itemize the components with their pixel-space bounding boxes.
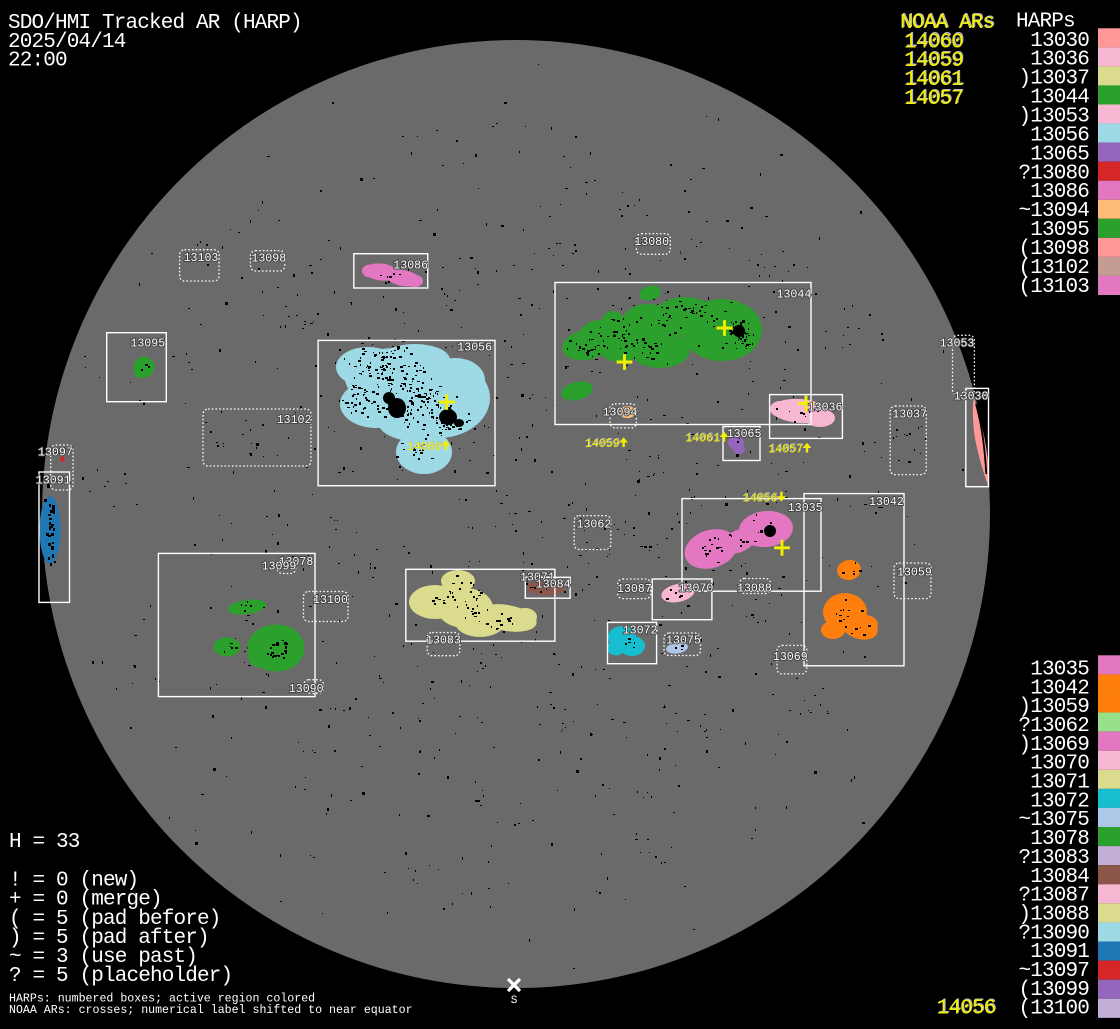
svg-text:14057: 14057: [768, 444, 803, 457]
svg-text:13080: 13080: [634, 236, 669, 249]
svg-text:13100: 13100: [313, 594, 348, 607]
svg-text:13097: 13097: [38, 447, 73, 460]
svg-text:14059: 14059: [585, 438, 620, 451]
svg-text:13095: 13095: [130, 338, 165, 351]
svg-text:13036: 13036: [808, 402, 843, 415]
svg-text:13088: 13088: [737, 583, 772, 596]
svg-text:13087: 13087: [617, 583, 652, 596]
svg-text:13042: 13042: [869, 496, 904, 509]
svg-text:13086: 13086: [393, 260, 428, 273]
svg-text:13099: 13099: [262, 561, 297, 574]
svg-text:13083: 13083: [426, 635, 461, 648]
svg-text:22:00: 22:00: [8, 50, 67, 73]
svg-text:13065: 13065: [727, 428, 762, 441]
svg-text:13094: 13094: [603, 406, 638, 419]
svg-text:NOAA ARs: crosses; numerical l: NOAA ARs: crosses; numerical label shift…: [9, 1004, 413, 1017]
svg-text:13035: 13035: [788, 502, 823, 515]
svg-text:H = 33: H = 33: [9, 831, 80, 854]
svg-text:14057: 14057: [904, 88, 963, 111]
svg-text:13070: 13070: [679, 583, 714, 596]
svg-text:13084: 13084: [536, 578, 571, 591]
svg-text:13053: 13053: [940, 337, 975, 350]
svg-text:S: S: [511, 995, 518, 1007]
svg-text:(13100: (13100: [1018, 998, 1089, 1021]
svg-text:13072: 13072: [623, 625, 658, 638]
svg-text:13056: 13056: [457, 342, 492, 355]
svg-text:13098: 13098: [251, 253, 286, 266]
svg-text:13102: 13102: [277, 414, 312, 427]
svg-text:13091: 13091: [36, 475, 71, 488]
svg-text:13075: 13075: [666, 635, 701, 648]
svg-text:14056: 14056: [742, 493, 777, 506]
svg-text:13059: 13059: [897, 567, 932, 580]
svg-text:14061: 14061: [685, 433, 720, 446]
svg-text:(13103: (13103: [1018, 276, 1089, 299]
svg-text:14060: 14060: [407, 441, 442, 454]
svg-text:13103: 13103: [184, 252, 219, 265]
svg-text:14056: 14056: [937, 998, 996, 1021]
svg-text:13062: 13062: [577, 519, 612, 532]
svg-text:? = 5 (placeholder): ? = 5 (placeholder): [9, 965, 232, 988]
svg-text:13090: 13090: [289, 683, 324, 696]
svg-text:13030: 13030: [954, 391, 989, 404]
svg-text:13044: 13044: [777, 289, 812, 302]
svg-text:13037: 13037: [892, 409, 927, 422]
svg-text:13069: 13069: [773, 651, 808, 664]
